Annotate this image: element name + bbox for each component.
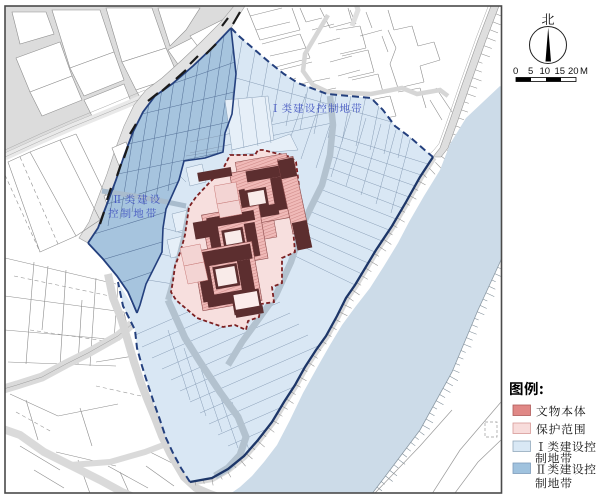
svg-text:20: 20 xyxy=(568,66,579,77)
svg-text:M: M xyxy=(580,66,588,77)
svg-text:0: 0 xyxy=(513,66,518,77)
svg-text:10: 10 xyxy=(540,66,551,77)
svg-text:15: 15 xyxy=(555,66,566,77)
svg-text:5: 5 xyxy=(528,66,533,77)
